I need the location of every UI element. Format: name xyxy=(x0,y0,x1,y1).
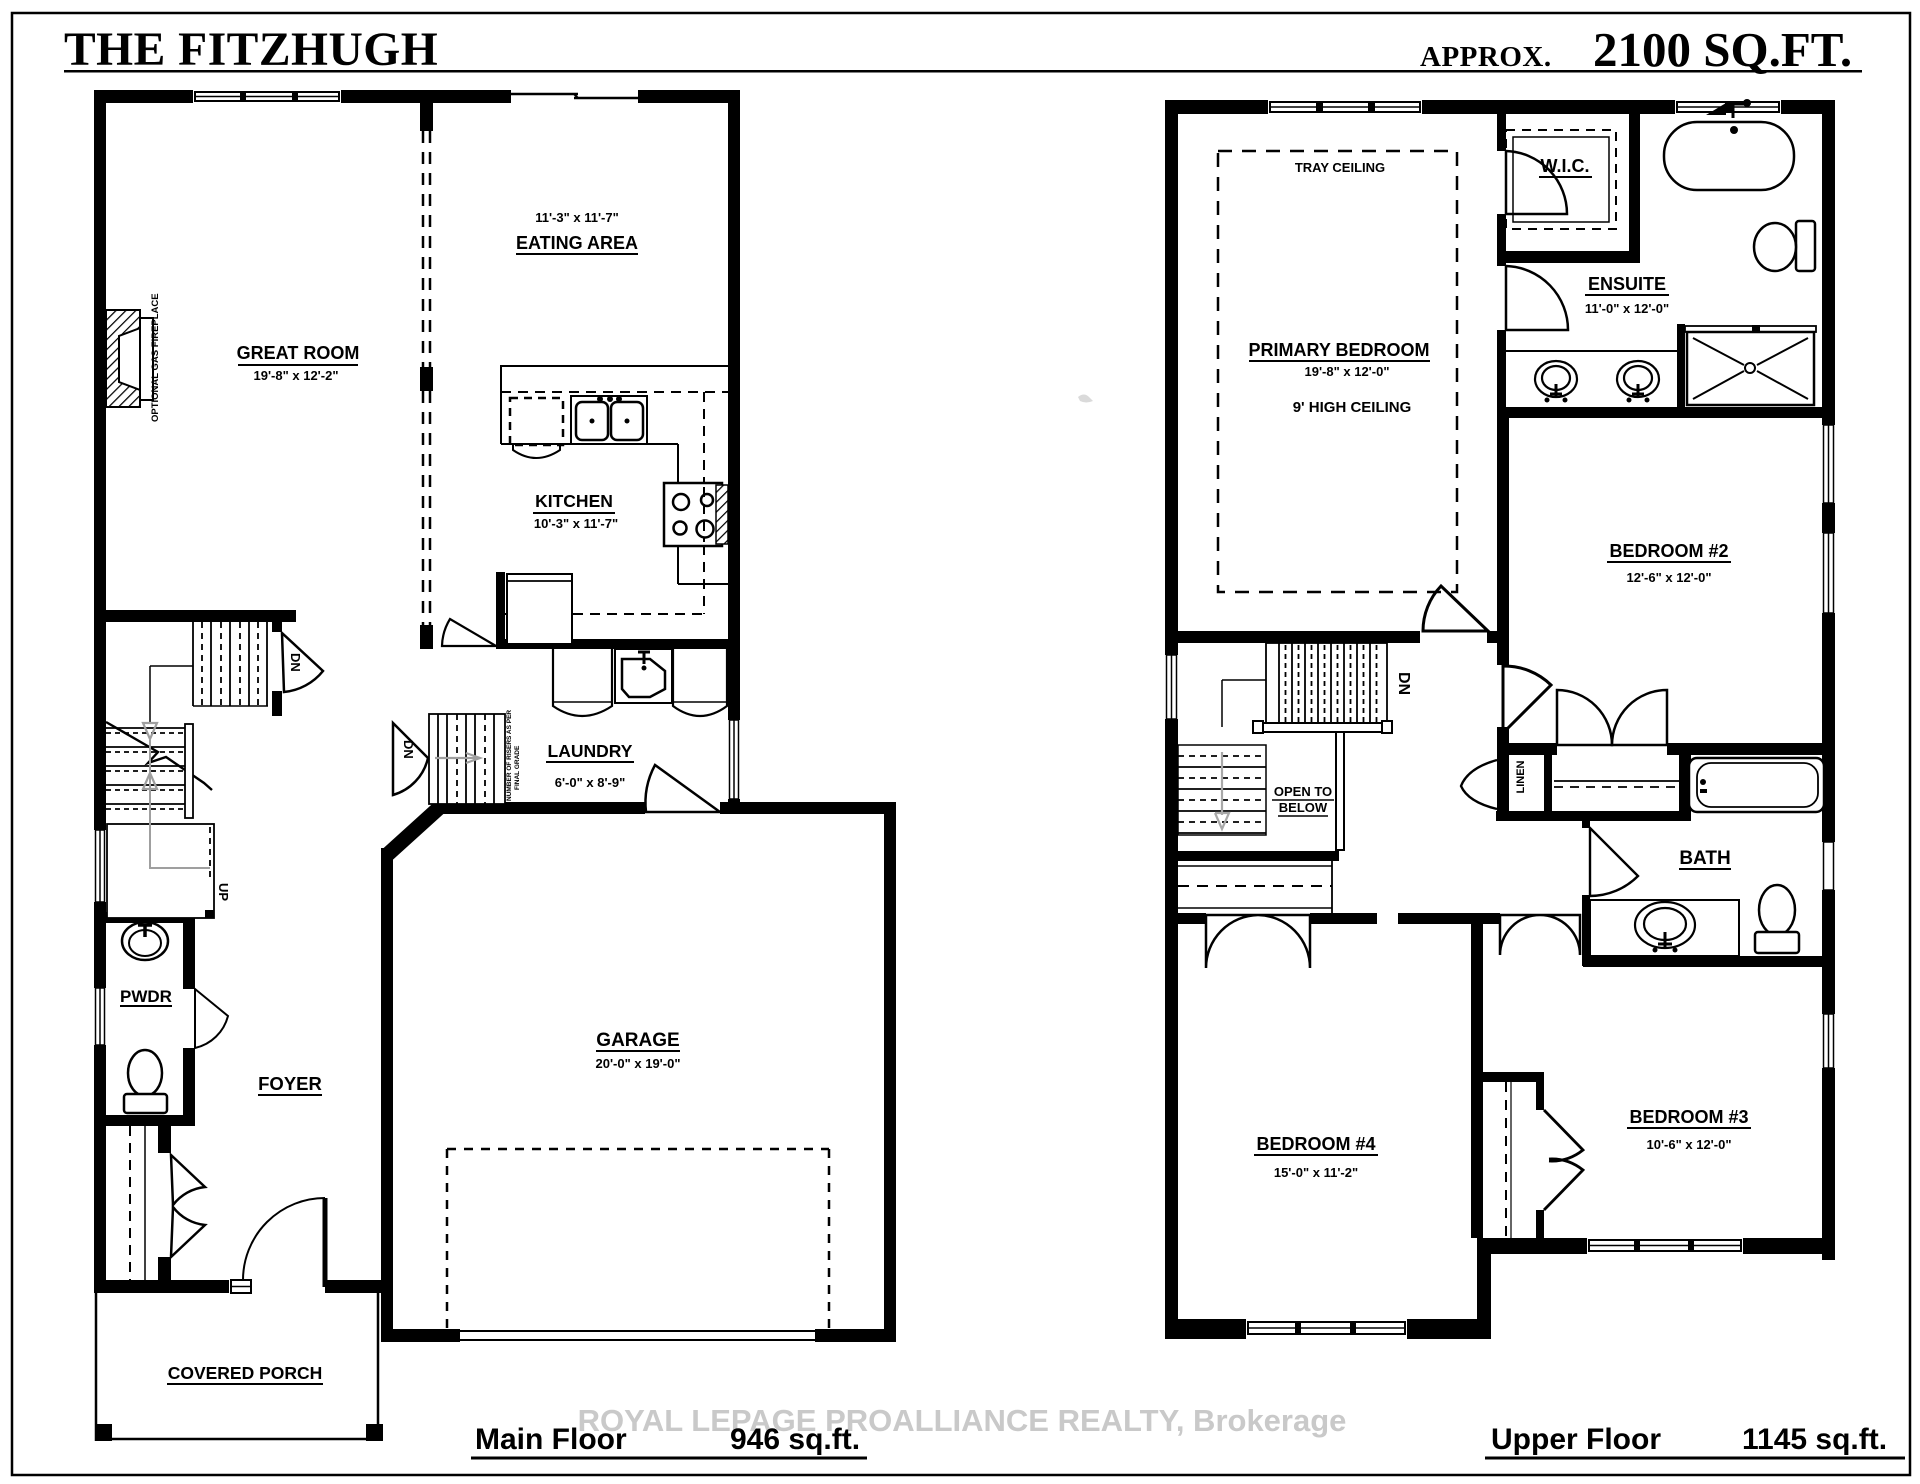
svg-text:FINAL GRADE: FINAL GRADE xyxy=(514,745,521,790)
svg-text:APPROX.: APPROX. xyxy=(1420,41,1552,73)
svg-text:Upper Floor: Upper Floor xyxy=(1491,1423,1661,1456)
svg-text:THE FITZHUGH: THE FITZHUGH xyxy=(64,24,438,76)
svg-text:LAUNDRY: LAUNDRY xyxy=(548,741,633,761)
svg-text:GREAT ROOM: GREAT ROOM xyxy=(237,343,360,363)
svg-text:2100 SQ.FT.: 2100 SQ.FT. xyxy=(1593,22,1852,77)
svg-text:12'-6" x 12'-0": 12'-6" x 12'-0" xyxy=(1626,570,1711,585)
svg-text:11'-3" x 11'-7": 11'-3" x 11'-7" xyxy=(535,210,619,225)
svg-text:BATH: BATH xyxy=(1679,848,1730,869)
svg-text:DN: DN xyxy=(1395,672,1412,695)
svg-text:COVERED PORCH: COVERED PORCH xyxy=(168,1363,323,1383)
svg-text:KITCHEN: KITCHEN xyxy=(535,491,613,511)
svg-text:15'-0" x 11'-2": 15'-0" x 11'-2" xyxy=(1274,1165,1358,1180)
svg-text:FOYER: FOYER xyxy=(258,1073,322,1094)
svg-text:946 sq.ft.: 946 sq.ft. xyxy=(730,1423,860,1456)
svg-text:20'-0" x 19'-0": 20'-0" x 19'-0" xyxy=(595,1056,680,1071)
svg-text:W.I.C.: W.I.C. xyxy=(1541,156,1590,176)
svg-text:EATING AREA: EATING AREA xyxy=(516,233,638,253)
svg-text:NUMBER OF RISERS AS PER: NUMBER OF RISERS AS PER xyxy=(506,710,513,801)
svg-text:Main Floor: Main Floor xyxy=(475,1423,627,1456)
svg-text:DN: DN xyxy=(401,740,416,759)
svg-text:PRIMARY BEDROOM: PRIMARY BEDROOM xyxy=(1248,340,1429,360)
svg-text:ROYAL LEPAGE PROALLIANCE REALT: ROYAL LEPAGE PROALLIANCE REALTY, Brokera… xyxy=(578,1403,1347,1438)
svg-text:10'-3" x 11'-7": 10'-3" x 11'-7" xyxy=(534,516,618,531)
svg-text:DN: DN xyxy=(288,653,303,672)
svg-text:ENSUITE: ENSUITE xyxy=(1588,274,1666,294)
svg-text:UP: UP xyxy=(216,883,231,901)
svg-text:19'-8" x 12'-2": 19'-8" x 12'-2" xyxy=(253,368,338,383)
svg-text:BEDROOM #4: BEDROOM #4 xyxy=(1256,1134,1375,1154)
svg-text:BEDROOM #3: BEDROOM #3 xyxy=(1629,1107,1748,1127)
svg-text:9' HIGH CEILING: 9' HIGH CEILING xyxy=(1293,399,1412,416)
svg-text:BEDROOM #2: BEDROOM #2 xyxy=(1609,541,1728,561)
svg-text:TRAY CEILING: TRAY CEILING xyxy=(1295,160,1385,175)
svg-text:LINEN: LINEN xyxy=(1515,760,1527,793)
svg-text:1145 sq.ft.: 1145 sq.ft. xyxy=(1742,1423,1887,1456)
svg-text:10'-6" x 12'-0": 10'-6" x 12'-0" xyxy=(1646,1137,1731,1152)
svg-text:19'-8" x 12'-0": 19'-8" x 12'-0" xyxy=(1304,364,1389,379)
svg-text:BELOW: BELOW xyxy=(1279,800,1328,815)
svg-text:OPTIONAL GAS FIREPLACE: OPTIONAL GAS FIREPLACE xyxy=(150,293,161,422)
svg-text:6'-0" x 8'-9": 6'-0" x 8'-9" xyxy=(555,775,626,790)
svg-text:GARAGE: GARAGE xyxy=(596,1030,679,1051)
svg-text:OPEN TO: OPEN TO xyxy=(1274,784,1332,799)
svg-text:PWDR: PWDR xyxy=(120,987,172,1006)
svg-text:11'-0" x 12'-0": 11'-0" x 12'-0" xyxy=(1585,301,1669,316)
